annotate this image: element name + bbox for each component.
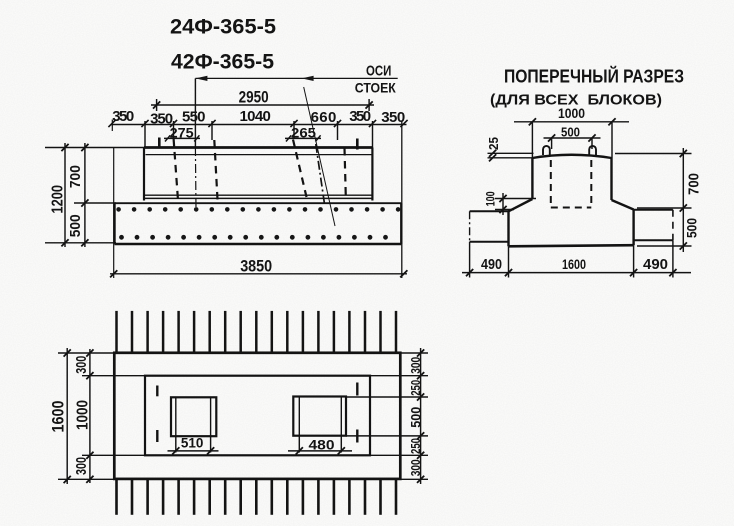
svg-text:1200: 1200 (49, 185, 66, 214)
svg-text:700: 700 (67, 165, 84, 188)
svg-text:300: 300 (74, 356, 90, 374)
svg-text:275: 275 (170, 125, 194, 141)
svg-text:265: 265 (291, 125, 316, 141)
svg-text:300: 300 (408, 357, 423, 374)
svg-text:24Ф-365-5: 24Ф-365-5 (170, 16, 276, 39)
svg-text:1600: 1600 (562, 256, 586, 272)
svg-text:1040: 1040 (240, 108, 271, 125)
svg-text:СТОЕК: СТОЕК (355, 81, 397, 96)
svg-text:300: 300 (74, 457, 90, 475)
svg-text:700: 700 (685, 173, 702, 195)
svg-text:3850: 3850 (240, 257, 272, 276)
svg-text:350: 350 (349, 108, 371, 125)
svg-text:ОСИ: ОСИ (366, 63, 391, 80)
svg-text:500: 500 (407, 407, 423, 428)
svg-text:1000: 1000 (75, 400, 92, 430)
svg-text:25: 25 (487, 137, 501, 150)
svg-text:500: 500 (683, 218, 699, 238)
svg-text:250: 250 (408, 380, 423, 396)
svg-text:1000: 1000 (558, 106, 585, 121)
svg-text:42Ф-365-5: 42Ф-365-5 (171, 51, 274, 74)
svg-text:510: 510 (181, 435, 204, 451)
svg-text:350: 350 (112, 108, 134, 125)
svg-text:490: 490 (643, 256, 668, 273)
svg-text:500: 500 (561, 124, 580, 139)
svg-text:1600: 1600 (49, 401, 68, 433)
svg-text:250: 250 (408, 438, 423, 454)
svg-text:660: 660 (311, 109, 337, 126)
svg-text:300: 300 (408, 459, 423, 476)
svg-text:2950: 2950 (239, 88, 269, 107)
svg-text:500: 500 (67, 214, 84, 237)
svg-text:480: 480 (309, 437, 335, 453)
svg-text:490: 490 (481, 256, 502, 273)
svg-text:ПОПЕРЕЧНЫЙ РАЗРЕЗ: ПОПЕРЕЧНЫЙ РАЗРЕЗ (504, 66, 684, 87)
svg-text:550: 550 (182, 109, 206, 126)
svg-text:100: 100 (483, 191, 497, 206)
